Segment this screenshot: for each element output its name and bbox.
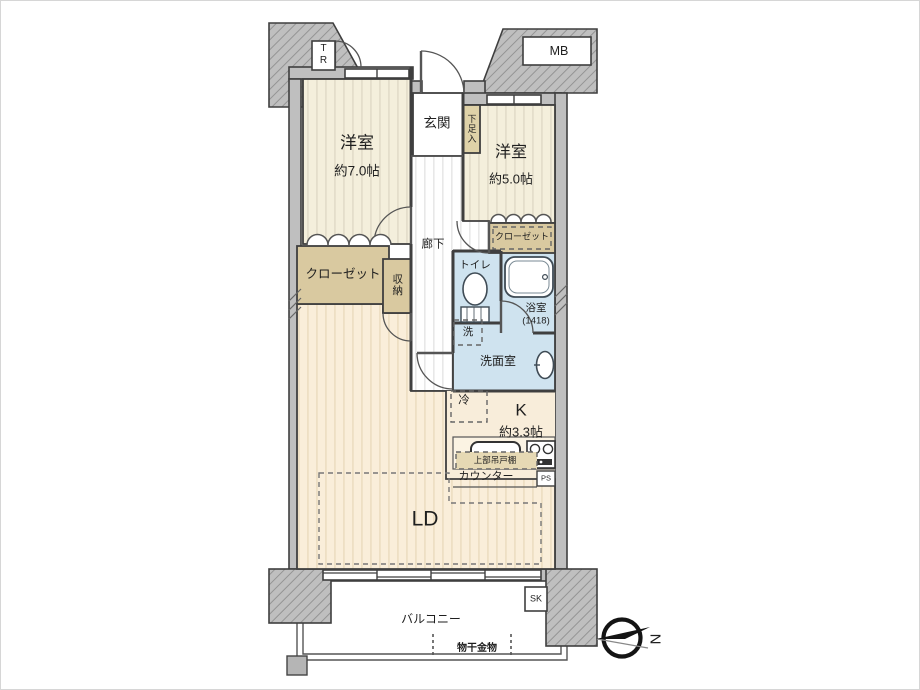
washer-label: 洗 [463,327,474,338]
storage-label: 収納 [392,274,403,297]
window-living-sliding [323,570,541,580]
hanging-cupboard-label: 上部吊戸棚 [474,456,517,465]
wall-block-bottom-left [269,569,331,623]
bedroom-right-label: 洋室 [495,145,527,161]
balcony-area [287,621,567,675]
wall-block-bottom-right [546,569,597,646]
bedroom-right-size: 約5.0帖 [489,173,533,186]
bathroom-size: (1418) [522,316,549,326]
closet-left-label: クローゼット [305,268,380,281]
shoe-box-label: 下足入 [467,114,476,144]
kitchen-label: K [515,402,526,419]
washroom-label: 洗面室 [480,355,516,367]
kitchen-size: 約3.3帖 [499,426,543,439]
bedroom-left-label: 洋室 [340,135,374,152]
hallway-label: 廊下 [422,239,445,251]
slop-sink-label: SK [530,595,542,604]
balcony-post [287,656,307,675]
bedroom-left-size: 約7.0帖 [334,164,380,178]
floorplan-drawing [1,1,920,690]
pipe-space-label: PS [541,474,551,482]
toilet-bowl [463,273,487,305]
counter-label: カウンター [459,472,514,483]
trunk-room-label: TR [318,43,328,67]
compass-north-label: N [648,634,663,645]
floorplan-canvas: TR MB 洋室 約7.0帖 玄関 下足入 洋室 約5.0帖 クローゼット 廊下… [0,0,920,690]
toilet-label: トイレ [459,260,491,271]
compass [596,620,650,657]
closet-right-label: クローゼット [495,233,549,242]
laundry-hardware-label: 物干金物 [457,644,497,654]
balcony-label: バルコニー [401,613,461,625]
refrigerator-label: 冷 [458,395,470,407]
bathroom-label: 浴室 [526,303,547,314]
entrance-label: 玄関 [424,116,451,130]
front-door-swing [421,51,464,93]
bedroom-left-floor [303,79,411,244]
meter-box-label: MB [550,45,569,58]
living-dining-label: LD [412,509,439,530]
